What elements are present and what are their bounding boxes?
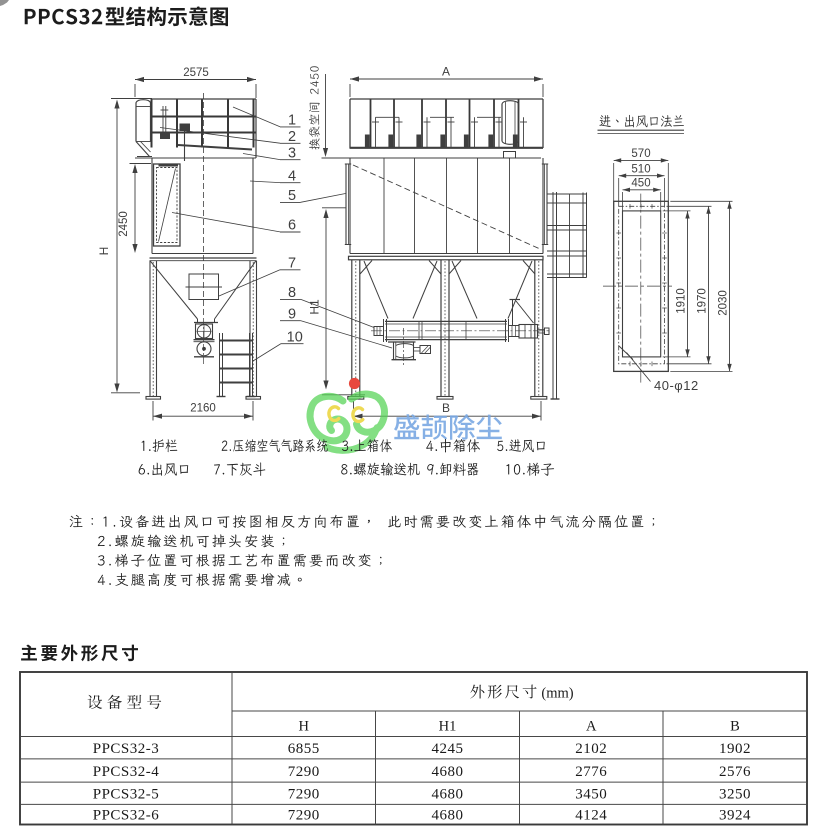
svg-text:1902: 1902 xyxy=(719,741,751,757)
svg-text:PPCS32-5: PPCS32-5 xyxy=(93,787,160,803)
svg-text:1970: 1970 xyxy=(696,288,708,314)
svg-text:4680: 4680 xyxy=(432,764,464,780)
svg-text:10: 10 xyxy=(287,329,303,345)
svg-text:1: 1 xyxy=(288,113,296,129)
svg-text:2450: 2450 xyxy=(118,211,130,237)
svg-text:5: 5 xyxy=(288,188,296,204)
svg-text:B: B xyxy=(730,719,740,735)
svg-text:4680: 4680 xyxy=(432,787,464,803)
svg-text:H1: H1 xyxy=(439,719,457,735)
svg-text:4: 4 xyxy=(288,168,296,184)
svg-text:H: H xyxy=(298,719,309,735)
svg-text:H1: H1 xyxy=(308,299,322,315)
svg-text:40-φ12: 40-φ12 xyxy=(654,378,699,393)
svg-text:PPCS32-6: PPCS32-6 xyxy=(93,808,160,824)
svg-text:B: B xyxy=(442,401,450,415)
svg-text:7290: 7290 xyxy=(288,764,320,780)
svg-text:H: H xyxy=(97,247,111,256)
svg-text:2030: 2030 xyxy=(717,290,729,316)
svg-text:PPCS32-3: PPCS32-3 xyxy=(93,741,160,757)
svg-text:1910: 1910 xyxy=(675,288,687,314)
svg-text:4680: 4680 xyxy=(432,808,464,824)
svg-text:3250: 3250 xyxy=(719,787,751,803)
svg-text:2: 2 xyxy=(288,129,296,145)
svg-text:4245: 4245 xyxy=(432,741,464,757)
svg-text:450: 450 xyxy=(631,177,650,189)
svg-text:2575: 2575 xyxy=(183,67,209,79)
svg-text:6: 6 xyxy=(288,218,296,234)
svg-text:(mm): (mm) xyxy=(541,685,573,701)
svg-text:PPCS32-4: PPCS32-4 xyxy=(93,764,160,780)
svg-text:7290: 7290 xyxy=(288,808,320,824)
svg-text:6855: 6855 xyxy=(288,741,320,757)
svg-text:7: 7 xyxy=(288,256,296,272)
svg-text:3450: 3450 xyxy=(575,787,607,803)
svg-text:2160: 2160 xyxy=(190,403,216,415)
svg-text:8: 8 xyxy=(288,285,296,301)
svg-text:7290: 7290 xyxy=(288,787,320,803)
svg-text:3: 3 xyxy=(288,145,296,161)
svg-text:510: 510 xyxy=(631,163,650,175)
svg-text:2776: 2776 xyxy=(575,764,607,780)
svg-text:9: 9 xyxy=(288,306,296,322)
svg-text:4124: 4124 xyxy=(575,808,607,824)
svg-text:A: A xyxy=(586,719,597,735)
svg-text:2576: 2576 xyxy=(719,764,751,780)
svg-text:570: 570 xyxy=(631,148,650,160)
svg-text:A: A xyxy=(442,65,450,79)
svg-text:2102: 2102 xyxy=(575,741,607,757)
svg-text:3924: 3924 xyxy=(719,808,751,824)
